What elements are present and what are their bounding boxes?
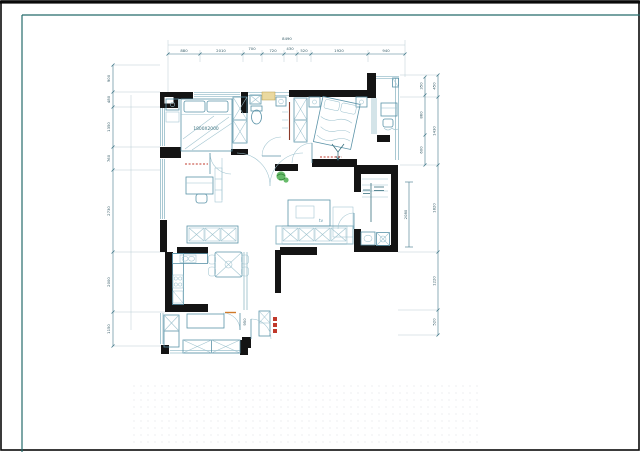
- dim-top-8: 940: [382, 48, 390, 53]
- bed-2: [313, 97, 360, 150]
- lamp-icon: [360, 100, 364, 104]
- dimension-right-bath: 2080: [403, 182, 413, 247]
- chair: [196, 194, 207, 203]
- dim-left-1: 900: [106, 74, 111, 82]
- toilet: [251, 106, 262, 124]
- plant-icon: [276, 171, 288, 182]
- dim-bath: 2080: [403, 209, 408, 219]
- cabinet: [166, 112, 179, 122]
- room-balcony: [381, 78, 399, 130]
- dim-top-5: 430: [286, 46, 294, 51]
- dim-routed-3: 1820: [432, 203, 437, 213]
- dim-left-2: 480: [106, 95, 111, 103]
- dimension-right-balcony: 350 860 600: [419, 76, 427, 167]
- ground-hatch: [128, 383, 478, 445]
- page-border: [0, 1, 640, 450]
- wardrobe-foyer: [183, 340, 240, 353]
- chair: [242, 267, 249, 276]
- shower-symbol: [363, 183, 384, 222]
- shoe-cabinet: [259, 311, 270, 336]
- bench: [187, 314, 224, 328]
- room-master-bath: [250, 92, 288, 156]
- vanity-sink: [361, 232, 375, 245]
- bed-size-label: 1800X2000: [193, 126, 219, 132]
- lamp-icon: [313, 100, 317, 104]
- dim-top-1: 880: [180, 48, 188, 53]
- entry-red-mark: [273, 317, 277, 321]
- room-bedroom-1: 1800X2000: [166, 97, 247, 174]
- chair: [383, 119, 393, 127]
- dim-top-3: 700: [248, 46, 256, 51]
- entry-corridor: 950: [225, 311, 277, 339]
- bookshelf: [215, 168, 222, 202]
- dim-top-4: 720: [269, 48, 277, 53]
- foyer-cabinet: [164, 315, 179, 347]
- dim-left-4: 760: [106, 154, 111, 162]
- dim-left-5: 2730: [106, 206, 111, 216]
- dim-top-7: 1920: [334, 48, 344, 53]
- coffee-table-rug: [288, 200, 330, 226]
- room-study: [186, 168, 238, 243]
- dim-balc-3: 600: [419, 146, 424, 154]
- dim-routed-5: 520: [432, 318, 437, 326]
- pillow: [184, 101, 205, 112]
- room-dining: [209, 252, 249, 277]
- entry-red-mark: [273, 329, 277, 333]
- walls: [160, 73, 398, 355]
- sofa-living: [276, 226, 353, 244]
- dim-left-3: 1350: [106, 122, 111, 132]
- floor-plan-canvas: 8490 880 2010 700 720 430 520 1920 940 9…: [0, 0, 640, 452]
- kitchen-sink: [180, 255, 196, 263]
- tv-label: tv: [319, 218, 324, 223]
- desk: [186, 177, 213, 194]
- dim-balc-2: 860: [419, 111, 424, 119]
- dim-balc-1: 350: [419, 82, 424, 90]
- stove: [173, 275, 183, 288]
- dimension-left: 900 480 1350 760 2730 2000 1150: [106, 64, 165, 348]
- room-living: tv: [276, 200, 353, 244]
- door-arc: [210, 153, 231, 174]
- cabinet-top: [262, 92, 275, 100]
- chair: [209, 255, 216, 264]
- dim-top-2: 2010: [216, 48, 226, 53]
- entry-red-mark: [273, 323, 277, 327]
- bed-1: [181, 99, 232, 151]
- dim-routed-2: 1430: [432, 126, 437, 136]
- drawing-sheet: 8490 880 2010 700 720 430 520 1920 940 9…: [0, 0, 640, 452]
- chair: [242, 255, 249, 264]
- dim-left-6: 2000: [106, 277, 111, 287]
- dim-routed-1: 450: [432, 82, 437, 90]
- room-foyer: [164, 313, 240, 353]
- dim-left-7: 1150: [106, 324, 111, 334]
- dim-routed-4: 1220: [432, 276, 437, 286]
- chair: [209, 267, 216, 276]
- room-kitchen: [173, 254, 208, 305]
- dim-total-top: 8490: [282, 36, 292, 41]
- entry-door-dim: 950: [242, 318, 247, 326]
- door-arc: [237, 153, 270, 186]
- wardrobe-bedroom-2: [294, 98, 307, 142]
- washing-machine: [377, 233, 390, 246]
- desk: [381, 103, 397, 116]
- nightstand: [356, 97, 367, 107]
- door-arc: [262, 137, 281, 156]
- door-arc: [223, 313, 240, 330]
- sofa-study: [187, 226, 238, 243]
- door-arc: [338, 213, 354, 229]
- pillow: [207, 101, 228, 112]
- basin-2: [276, 97, 286, 106]
- nightstand: [309, 97, 320, 107]
- dim-top-6: 520: [300, 48, 308, 53]
